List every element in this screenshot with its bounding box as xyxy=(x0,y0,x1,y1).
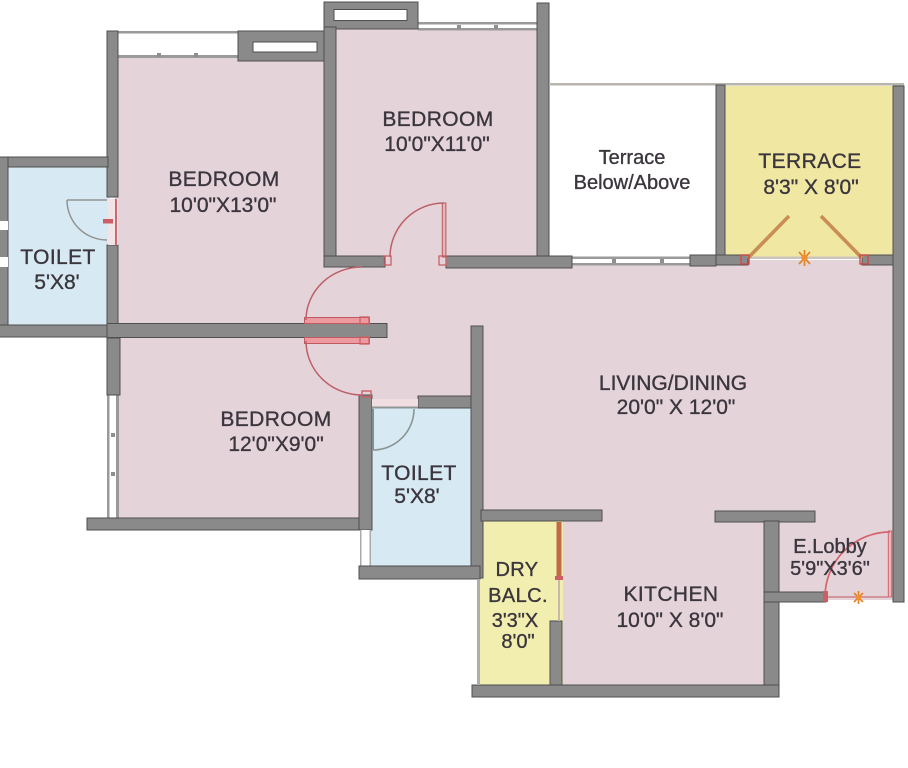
svg-text:10'0"X13'0": 10'0"X13'0" xyxy=(169,194,276,217)
svg-text:KITCHEN: KITCHEN xyxy=(624,583,719,606)
svg-text:3'3"X: 3'3"X xyxy=(492,610,539,632)
svg-text:LIVING/DINING: LIVING/DINING xyxy=(599,372,747,395)
svg-text:20'0" X 12'0": 20'0" X 12'0" xyxy=(617,396,736,419)
svg-text:8'3" X 8'0": 8'3" X 8'0" xyxy=(763,176,858,199)
svg-text:BEDROOM: BEDROOM xyxy=(168,168,279,191)
svg-text:Terrace: Terrace xyxy=(599,147,666,169)
svg-text:5'X8': 5'X8' xyxy=(34,271,79,294)
svg-text:E.Lobby: E.Lobby xyxy=(793,536,866,558)
svg-text:TERRACE: TERRACE xyxy=(758,150,861,173)
svg-text:TOILET: TOILET xyxy=(20,246,96,269)
svg-text:Below/Above: Below/Above xyxy=(574,172,691,194)
svg-text:10'0"X11'0": 10'0"X11'0" xyxy=(384,133,489,156)
svg-text:12'0"X9'0": 12'0"X9'0" xyxy=(228,433,323,456)
svg-text:BEDROOM: BEDROOM xyxy=(382,108,493,131)
svg-text:BEDROOM: BEDROOM xyxy=(220,408,331,431)
svg-text:BALC.: BALC. xyxy=(488,585,548,607)
svg-text:DRY: DRY xyxy=(495,559,538,581)
svg-text:5'X8': 5'X8' xyxy=(394,485,439,508)
svg-text:8'0": 8'0" xyxy=(501,631,534,653)
svg-text:5'9"X3'6": 5'9"X3'6" xyxy=(790,558,870,580)
svg-text:TOILET: TOILET xyxy=(381,462,457,485)
svg-text:10'0" X 8'0": 10'0" X 8'0" xyxy=(617,609,724,632)
